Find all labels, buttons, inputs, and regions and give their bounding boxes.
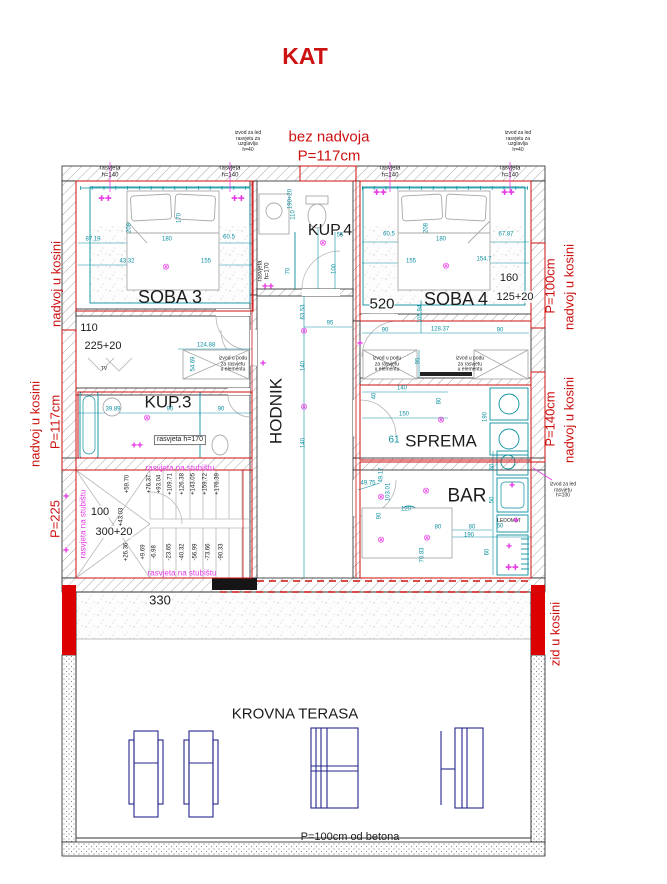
dim-125-20: 125+20 bbox=[496, 291, 533, 303]
nadvoj-right-mid: nadvoj u kosini bbox=[563, 377, 578, 463]
ceiling-light-icon: ⊗ bbox=[377, 493, 385, 502]
ceiling-light-icon: ⊗ bbox=[377, 536, 385, 545]
stair-elev-bot-1: +26.36 bbox=[124, 543, 131, 562]
dim-39-89: 39.89 bbox=[105, 407, 120, 414]
bed-lamp-icon: ✚✚ bbox=[98, 195, 111, 203]
led-outlet-icon: ✚ bbox=[260, 361, 266, 368]
dim-225-20: 225+20 bbox=[84, 340, 121, 352]
bez-nadvoja-height: P=117cm bbox=[298, 149, 361, 166]
tv-label: TV bbox=[101, 367, 107, 373]
dim-190-sprema: 190 bbox=[483, 412, 490, 422]
dim-120-bar: 120 bbox=[401, 507, 411, 514]
dim-70-83: 70.83 bbox=[420, 547, 427, 562]
dim-54-69: 54.69 bbox=[191, 356, 198, 371]
dim-90-kup3a: 90 bbox=[167, 407, 174, 414]
ceiling-light-icon: ⊗ bbox=[300, 403, 308, 412]
dim-190-bar: 190 bbox=[464, 533, 474, 540]
ceiling-light-icon: ⊗ bbox=[422, 487, 430, 496]
dim-43-32: 43.32 bbox=[119, 259, 134, 266]
dim-140-sprema: 140 bbox=[397, 386, 407, 393]
dim-110: 110 bbox=[80, 322, 98, 334]
izvod-led-uzglavlje-left: izvod za led rasvjetu za uzglavlja h=40 bbox=[235, 131, 261, 153]
dim-155-s3: 155 bbox=[201, 259, 211, 266]
led-outlet-icon: ✚ bbox=[509, 483, 515, 490]
ceiling-light-icon: ⊗ bbox=[162, 263, 170, 272]
p225-label: P=225 bbox=[49, 500, 64, 538]
bed-lamp-icon: ✚✚ bbox=[501, 189, 514, 197]
nadvoj-right-upper-height: P=100cm bbox=[544, 258, 559, 313]
rasvjeta-140-1: rasvjeta h=140 bbox=[99, 165, 120, 178]
dim-300-20: 300+20 bbox=[95, 526, 132, 538]
rasvjeta-stubiste-bottom: rasvjeta na stubištu bbox=[148, 570, 217, 579]
dim-90-b: 90 bbox=[497, 328, 504, 335]
room-sprema: SPREMA bbox=[405, 431, 477, 450]
dim-160: 160 bbox=[500, 272, 518, 284]
dim-100: 100 bbox=[91, 506, 109, 518]
mirror-light-icon: ✚✚ bbox=[131, 443, 143, 450]
dim-155-s4: 155 bbox=[406, 259, 416, 266]
dim-60-ledomat: 60 bbox=[497, 524, 504, 531]
dim-100-kup4: 100 bbox=[332, 264, 339, 274]
stair-elev-top-1: +59.70 bbox=[125, 475, 132, 494]
dim-105-94: 105.94 bbox=[418, 305, 425, 323]
dim-95-hodnik: 95 bbox=[327, 321, 334, 328]
stair-elev-bot-2: +9.69 bbox=[141, 544, 148, 559]
dim-128-37: 128.37 bbox=[431, 327, 449, 334]
dim-40-sprema: 40 bbox=[372, 393, 379, 400]
rasvjeta-140-4: rasvjeta h=140 bbox=[499, 165, 520, 178]
nadvoj-left-mid-height: P=117cm bbox=[49, 395, 64, 449]
dim-150-sprema: 150 bbox=[399, 412, 409, 419]
dim-49-75: 49.75 bbox=[360, 481, 375, 488]
floor-plan-canvas: KATbez nadvojaP=117cmnadvoj u kosininadv… bbox=[0, 0, 667, 884]
stair-elev-top-3: +93.04 bbox=[157, 475, 164, 494]
led-outlet-icon: ✚ bbox=[506, 544, 512, 551]
stair-elev-top-2: +76.37 bbox=[147, 475, 154, 494]
dim-154-7: 154.7 bbox=[476, 257, 491, 264]
ceiling-light-icon: ⊗ bbox=[143, 414, 151, 423]
stair-elev-top-5: +126.38 bbox=[180, 473, 187, 495]
room-soba3: SOBA 3 bbox=[138, 287, 202, 307]
dim-208-s3: 208 bbox=[127, 223, 134, 233]
dim-180-s3: 180 bbox=[162, 237, 172, 244]
rasvjeta-stubiste-side: rasvjeta na stubištu bbox=[80, 490, 89, 559]
stair-elev-top-4: +109.71 bbox=[168, 473, 175, 495]
dim-87-19: 87.19 bbox=[85, 237, 100, 244]
rasvjeta-stubiste-top: rasvjeta na stubištu bbox=[146, 465, 215, 474]
dim-140-h1: 140 bbox=[301, 361, 308, 371]
ceiling-light-icon: ⊗ bbox=[300, 327, 308, 336]
dim-180-s4: 180 bbox=[436, 237, 446, 244]
led-outlet-icon: ✚ bbox=[357, 341, 363, 348]
dim-124-88: 124.88 bbox=[197, 343, 215, 350]
izvod-podu-soba4-right: izvod u podu za rasvjetu u elementu bbox=[456, 357, 484, 374]
stair-elev-bot-5: -40.32 bbox=[180, 543, 187, 560]
dim-90-bar: 90 bbox=[377, 513, 384, 520]
dim-330: 330 bbox=[149, 594, 171, 609]
room-soba4: SOBA 4 bbox=[424, 289, 488, 309]
stair-elev-mid: +43.03 bbox=[119, 508, 126, 527]
room-kup4: KUP.4 bbox=[308, 222, 352, 240]
dim-90-kup3b: 90 bbox=[218, 407, 225, 414]
mirror-light-icon: ✚✚ bbox=[262, 284, 274, 291]
terrace-note: P=100cm od betona bbox=[301, 831, 400, 843]
dim-90-a: 90 bbox=[382, 328, 389, 335]
ceiling-light-icon: ⊗ bbox=[319, 239, 327, 248]
room-krovna-terasa: KROVNA TERASA bbox=[232, 707, 358, 724]
dim-110-kup4: 110 bbox=[291, 210, 298, 220]
rasvjeta-140-3: rasvjeta h=140 bbox=[379, 165, 400, 178]
room-kup3: KUP.3 bbox=[145, 392, 192, 411]
led-outlet-icon: ✚ bbox=[63, 548, 69, 555]
ledomat-label: LEDOMAT bbox=[497, 519, 521, 525]
dim-70-kup4: 70 bbox=[286, 268, 293, 275]
bar-light-icon: ✚✚ bbox=[505, 564, 518, 572]
dim-67-87: 67.87 bbox=[498, 232, 513, 239]
dim-60-5-s4: 60.5 bbox=[383, 232, 395, 239]
dim-60-5-s3: 60.5 bbox=[223, 235, 235, 242]
bez-nadvoja-label: bez nadvoja bbox=[289, 130, 370, 147]
nadvoj-right-upper: nadvoj u kosini bbox=[563, 244, 578, 330]
labels-layer: KATbez nadvojaP=117cmnadvoj u kosininadv… bbox=[0, 0, 667, 884]
stair-elev-top-6: +143.05 bbox=[191, 473, 198, 495]
izvod-led-h100: izvod za led rasvjetu h=100 bbox=[550, 483, 576, 500]
stair-elev-top-7: +159.72 bbox=[203, 473, 210, 495]
led-outlet-icon: ✚ bbox=[63, 494, 69, 501]
dim-50-col: 50 bbox=[490, 497, 497, 504]
dim-60-col-a: 60 bbox=[490, 464, 497, 471]
stair-elev-top-8: +176.39 bbox=[215, 473, 222, 495]
nadvoj-left-upper: nadvoj u kosini bbox=[50, 241, 65, 327]
dim-55-kup4: 55 bbox=[337, 233, 344, 240]
ceiling-light-icon: ⊗ bbox=[442, 262, 450, 271]
izvod-led-uzglavlje-right: izvod za led rasvjetu za uzglavlja h=40 bbox=[505, 131, 531, 153]
dim-61-sprema: 61 bbox=[388, 434, 399, 445]
stair-elev-bot-8: -90.33 bbox=[219, 543, 226, 560]
bed-lamp-icon: ✚✚ bbox=[373, 189, 386, 197]
zid-u-kosini-label: zid u kosini bbox=[549, 602, 564, 666]
dim-60-col-b: 60 bbox=[485, 549, 492, 556]
dim-140-h2: 140 bbox=[301, 438, 308, 448]
dim-80-bar-b: 80 bbox=[469, 525, 476, 532]
plan-title: KAT bbox=[282, 44, 328, 70]
dim-208-s4: 208 bbox=[424, 223, 431, 233]
ceiling-light-icon: ⊗ bbox=[423, 534, 431, 543]
izvod-podu-kup3: izvod u podu za rasvjetu u elementu bbox=[219, 357, 247, 374]
room-hodnik: HODNIK bbox=[266, 378, 285, 444]
dim-49-17: 49.17 bbox=[379, 467, 386, 482]
dim-520: 520 bbox=[369, 297, 394, 314]
dim-170-s3: 170 bbox=[177, 213, 184, 223]
dim-190-20-kup4: 190+20 bbox=[288, 189, 295, 209]
rasvjeta-140-2: rasvjeta h=140 bbox=[219, 165, 240, 178]
stair-elev-bot-4: -23.65 bbox=[167, 543, 174, 560]
nadvoj-left-mid: nadvoj u kosini bbox=[29, 381, 44, 467]
led-outlet-icon: ✚ bbox=[513, 518, 519, 525]
rasvjeta-170-kup4: rasvjeta h=170 bbox=[257, 260, 270, 281]
bed-lamp-icon: ✚✚ bbox=[231, 195, 244, 203]
room-bar: BAR bbox=[447, 485, 486, 506]
dim-80-sprema: 80 bbox=[437, 398, 444, 405]
dim-103-01: 103.01 bbox=[386, 483, 393, 501]
dim-80-bar-a: 80 bbox=[435, 525, 442, 532]
izvod-podu-soba4-left: izvod u podu za rasvjetu u elementu bbox=[373, 357, 401, 374]
rasvjeta-170-kup3: rasvjeta h=170 bbox=[154, 435, 206, 445]
dim-63-53: 63.53 bbox=[301, 304, 308, 319]
stair-elev-bot-6: -56.99 bbox=[193, 543, 200, 560]
dim-95-sprema: 95 bbox=[416, 358, 423, 365]
stair-elev-bot-3: -6.98 bbox=[152, 545, 159, 559]
nadvoj-right-mid-height: P=140cm bbox=[544, 391, 559, 446]
ceiling-light-icon: ⊗ bbox=[437, 416, 445, 425]
stair-elev-bot-7: -73.66 bbox=[206, 543, 213, 560]
